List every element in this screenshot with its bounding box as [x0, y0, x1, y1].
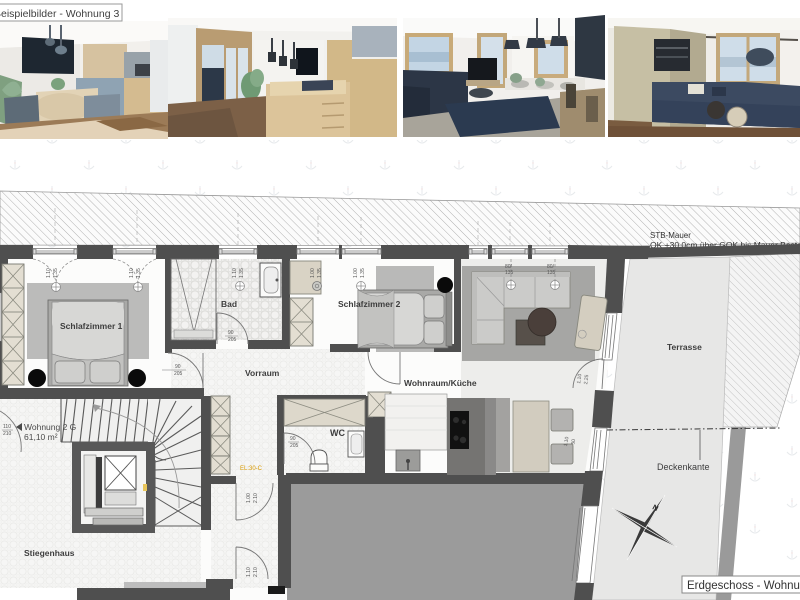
svg-text:1.10: 1.10 — [576, 373, 583, 384]
svg-text:1.35: 1.35 — [136, 268, 142, 278]
svg-text:Schlafzimmer 2: Schlafzimmer 2 — [338, 299, 401, 309]
svg-text:2.10: 2.10 — [253, 567, 259, 577]
svg-text:Vorraum: Vorraum — [245, 368, 280, 378]
svg-text:Stiegenhaus: Stiegenhaus — [24, 548, 75, 558]
svg-text:210: 210 — [3, 431, 12, 437]
svg-text:Schlafzimmer 1: Schlafzimmer 1 — [60, 321, 123, 331]
svg-text:Terrasse: Terrasse — [667, 342, 702, 352]
svg-text:EL:30-C: EL:30-C — [240, 466, 263, 472]
svg-text:Erdgeschoss - Wohnung 3: Erdgeschoss - Wohnung 3 — [687, 580, 800, 592]
svg-text:2.25: 2.25 — [583, 374, 590, 385]
svg-text:135: 135 — [505, 270, 514, 276]
svg-text:1.00: 1.00 — [246, 493, 252, 503]
svg-text:2.10: 2.10 — [253, 493, 259, 503]
svg-text:Wohnung 2 G: Wohnung 2 G — [24, 422, 76, 432]
svg-text:WC: WC — [330, 428, 345, 438]
svg-text:1.35: 1.35 — [360, 268, 366, 278]
svg-text:1.10: 1.10 — [46, 268, 52, 278]
svg-text:1.00: 1.00 — [353, 268, 359, 278]
svg-text:90: 90 — [290, 436, 296, 442]
svg-text:1.10: 1.10 — [232, 268, 238, 278]
svg-text:Wohnraum/Küche: Wohnraum/Küche — [404, 378, 477, 388]
svg-text:Deckenkante: Deckenkante — [657, 462, 710, 472]
svg-text:1.10: 1.10 — [129, 268, 135, 278]
svg-text:135: 135 — [547, 270, 556, 276]
svg-text:90: 90 — [228, 330, 234, 336]
svg-text:205: 205 — [174, 371, 183, 377]
svg-text:61,10 m²: 61,10 m² — [24, 432, 58, 442]
svg-text:110: 110 — [3, 424, 11, 430]
svg-text:1.00: 1.00 — [310, 268, 316, 278]
svg-text:1.35: 1.35 — [317, 268, 323, 278]
svg-text:1.35: 1.35 — [53, 268, 59, 278]
svg-text:Beispielbilder - Wohnung 3: Beispielbilder - Wohnung 3 — [0, 8, 119, 20]
svg-text:90: 90 — [175, 364, 181, 370]
svg-text:STB-Mauer: STB-Mauer — [650, 231, 691, 240]
svg-text:205: 205 — [228, 337, 237, 343]
svg-text:Bad: Bad — [221, 299, 237, 309]
svg-text:1.10: 1.10 — [246, 567, 252, 577]
svg-text:1.35: 1.35 — [239, 268, 245, 278]
svg-text:205: 205 — [290, 443, 299, 449]
